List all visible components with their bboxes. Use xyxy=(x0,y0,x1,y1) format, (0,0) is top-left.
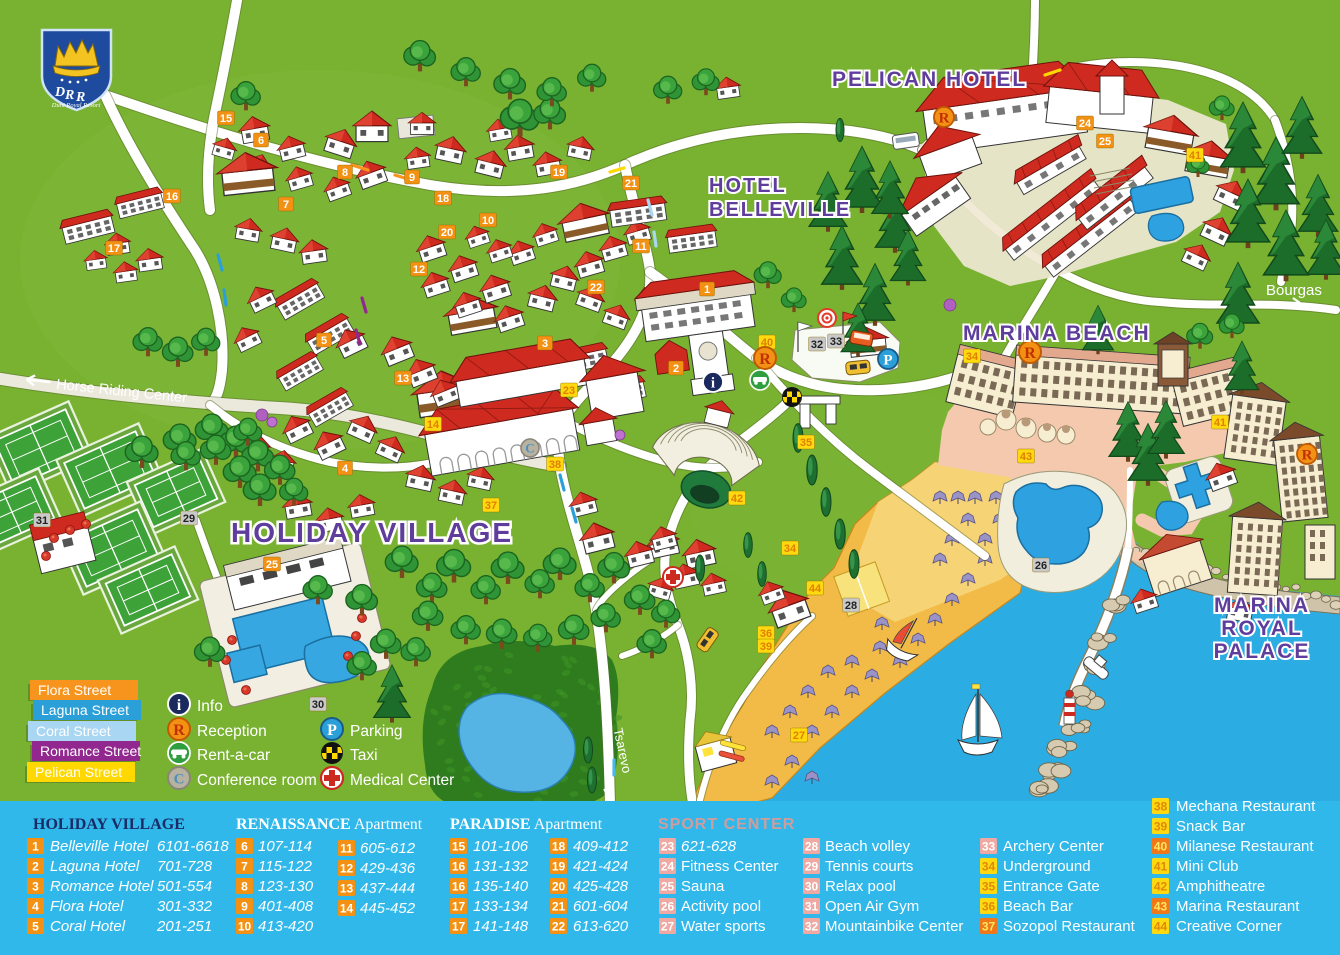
svg-text:201-251: 201-251 xyxy=(156,918,212,935)
svg-text:33: 33 xyxy=(830,336,842,348)
svg-text:Mountainbike Center: Mountainbike Center xyxy=(825,918,963,935)
svg-text:7: 7 xyxy=(241,860,248,874)
svg-text:PALACE: PALACE xyxy=(1214,640,1311,663)
svg-text:437-444: 437-444 xyxy=(360,880,415,897)
svg-text:29: 29 xyxy=(183,513,195,525)
svg-text:26: 26 xyxy=(661,900,675,914)
svg-text:115-122: 115-122 xyxy=(258,858,313,875)
svg-text:i: i xyxy=(177,697,182,714)
svg-text:BELLEVILLE: BELLEVILLE xyxy=(709,199,851,221)
svg-text:14: 14 xyxy=(340,902,354,916)
svg-text:16: 16 xyxy=(166,191,178,203)
svg-text:19: 19 xyxy=(552,860,566,874)
svg-text:445-452: 445-452 xyxy=(360,900,416,917)
svg-text:8: 8 xyxy=(342,167,348,179)
svg-text:Pelican Street: Pelican Street xyxy=(35,764,122,780)
svg-text:C: C xyxy=(174,771,185,787)
svg-text:MARINA BEACH: MARINA BEACH xyxy=(963,322,1151,345)
svg-text:Laguna Hotel: Laguna Hotel xyxy=(50,858,140,875)
svg-text:Coral Street: Coral Street xyxy=(36,723,111,739)
svg-text:36: 36 xyxy=(760,628,772,640)
svg-text:34: 34 xyxy=(784,543,797,555)
svg-text:18: 18 xyxy=(552,840,566,854)
svg-text:44: 44 xyxy=(1154,920,1168,934)
svg-text:409-412: 409-412 xyxy=(573,838,629,855)
svg-text:44: 44 xyxy=(809,583,822,595)
svg-text:31: 31 xyxy=(36,515,48,527)
svg-text:41: 41 xyxy=(1214,417,1226,429)
svg-text:R: R xyxy=(759,351,771,368)
svg-text:13: 13 xyxy=(397,373,409,385)
svg-text:41: 41 xyxy=(1154,860,1168,874)
svg-text:40: 40 xyxy=(1154,840,1168,854)
svg-text:38: 38 xyxy=(549,459,561,471)
svg-text:301-332: 301-332 xyxy=(157,898,213,915)
svg-text:38: 38 xyxy=(1154,800,1168,814)
svg-text:Bourgas: Bourgas xyxy=(1266,282,1322,299)
svg-text:133-134: 133-134 xyxy=(473,898,528,915)
svg-text:SPORT CENTER: SPORT CENTER xyxy=(658,816,795,833)
svg-text:Duni Royal Resort: Duni Royal Resort xyxy=(51,102,101,109)
svg-text:ROYAL: ROYAL xyxy=(1221,617,1303,640)
svg-text:605-612: 605-612 xyxy=(360,840,416,857)
svg-text:Tennis courts: Tennis courts xyxy=(825,858,913,875)
svg-text:613-620: 613-620 xyxy=(573,918,629,935)
svg-text:123-130: 123-130 xyxy=(258,878,314,895)
svg-text:3: 3 xyxy=(32,880,39,894)
svg-text:34: 34 xyxy=(966,351,979,363)
svg-text:14: 14 xyxy=(427,419,440,431)
svg-text:Romance Hotel: Romance Hotel xyxy=(50,878,154,895)
svg-text:Activity pool: Activity pool xyxy=(681,898,761,915)
svg-text:42: 42 xyxy=(1154,880,1168,894)
svg-text:Sauna: Sauna xyxy=(681,878,725,895)
svg-text:P: P xyxy=(327,722,337,739)
svg-text:Reception: Reception xyxy=(197,723,267,740)
svg-text:28: 28 xyxy=(805,840,819,854)
svg-text:i: i xyxy=(711,375,715,391)
svg-text:16: 16 xyxy=(452,860,466,874)
svg-text:107-114: 107-114 xyxy=(258,838,312,855)
svg-text:R: R xyxy=(1302,447,1313,463)
svg-text:20: 20 xyxy=(441,227,453,239)
svg-text:PELICAN HOTEL: PELICAN HOTEL xyxy=(832,68,1027,91)
svg-text:10: 10 xyxy=(238,920,252,934)
svg-text:429-436: 429-436 xyxy=(360,860,416,877)
svg-text:28: 28 xyxy=(845,600,857,612)
svg-text:C: C xyxy=(525,441,534,456)
svg-text:R: R xyxy=(173,722,185,739)
svg-text:Rent-a-car: Rent-a-car xyxy=(197,747,270,764)
svg-text:23: 23 xyxy=(563,385,575,397)
svg-text:Info: Info xyxy=(197,698,223,715)
svg-text:15: 15 xyxy=(452,840,466,854)
svg-text:31: 31 xyxy=(805,900,819,914)
svg-text:36: 36 xyxy=(982,900,996,914)
svg-text:17: 17 xyxy=(452,920,466,934)
svg-text:Marina Restaurant: Marina Restaurant xyxy=(1176,898,1300,915)
svg-text:Open Air Gym: Open Air Gym xyxy=(825,898,919,915)
svg-text:25: 25 xyxy=(661,880,675,894)
svg-text:34: 34 xyxy=(982,860,996,874)
svg-text:37: 37 xyxy=(982,920,996,934)
svg-text:9: 9 xyxy=(409,172,415,184)
svg-text:6101-6618: 6101-6618 xyxy=(157,838,229,855)
svg-text:101-106: 101-106 xyxy=(473,838,529,855)
svg-text:23: 23 xyxy=(661,840,675,854)
svg-text:16: 16 xyxy=(452,880,466,894)
svg-text:2: 2 xyxy=(673,363,679,375)
svg-text:Parking: Parking xyxy=(350,723,403,740)
svg-text:Underground: Underground xyxy=(1003,858,1091,875)
svg-text:25: 25 xyxy=(266,559,278,571)
svg-text:Beach Bar: Beach Bar xyxy=(1003,898,1073,915)
svg-text:17: 17 xyxy=(452,900,466,914)
svg-text:5: 5 xyxy=(32,920,39,934)
svg-text:27: 27 xyxy=(793,730,805,742)
svg-text:15: 15 xyxy=(220,113,232,125)
svg-text:Snack Bar: Snack Bar xyxy=(1176,818,1245,835)
svg-text:24: 24 xyxy=(1079,118,1092,130)
svg-text:Flora Street: Flora Street xyxy=(38,682,111,698)
svg-text:P: P xyxy=(883,352,892,368)
svg-text:21: 21 xyxy=(552,900,566,914)
svg-text:MARINA: MARINA xyxy=(1214,594,1310,617)
svg-text:701-728: 701-728 xyxy=(157,858,213,875)
svg-text:17: 17 xyxy=(108,243,120,255)
svg-text:22: 22 xyxy=(552,920,566,934)
svg-text:12: 12 xyxy=(413,264,425,276)
svg-text:RENAISSANCE Apartment: RENAISSANCE Apartment xyxy=(236,816,423,833)
svg-text:6: 6 xyxy=(258,135,264,147)
svg-text:24: 24 xyxy=(661,860,675,874)
svg-text:D: D xyxy=(54,85,65,100)
svg-text:Flora Hotel: Flora Hotel xyxy=(50,898,124,915)
svg-text:43: 43 xyxy=(1154,900,1168,914)
svg-text:33: 33 xyxy=(982,840,996,854)
svg-text:Sozopol Restaurant: Sozopol Restaurant xyxy=(1003,918,1136,935)
svg-text:1: 1 xyxy=(32,840,39,854)
svg-text:12: 12 xyxy=(340,862,354,876)
svg-text:26: 26 xyxy=(1035,560,1047,572)
svg-text:25: 25 xyxy=(1099,136,1111,148)
svg-text:Beach volley: Beach volley xyxy=(825,838,911,855)
svg-text:39: 39 xyxy=(760,641,772,653)
svg-text:HOLIDAY VILLAGE: HOLIDAY VILLAGE xyxy=(33,816,185,833)
svg-text:13: 13 xyxy=(340,882,354,896)
svg-text:37: 37 xyxy=(485,500,497,512)
svg-text:R: R xyxy=(939,110,950,126)
svg-text:4: 4 xyxy=(342,463,349,475)
svg-text:425-428: 425-428 xyxy=(573,878,629,895)
svg-text:Medical Center: Medical Center xyxy=(350,772,454,789)
svg-text:Belleville Hotel: Belleville Hotel xyxy=(50,838,149,855)
svg-text:131-132: 131-132 xyxy=(473,858,529,875)
svg-text:29: 29 xyxy=(805,860,819,874)
svg-text:Amphitheatre: Amphitheatre xyxy=(1176,878,1265,895)
svg-text:Mechana Restaurant: Mechana Restaurant xyxy=(1176,798,1316,815)
svg-text:5: 5 xyxy=(321,335,327,347)
svg-text:Romance Street: Romance Street xyxy=(40,743,141,759)
svg-text:35: 35 xyxy=(800,437,812,449)
svg-text:1: 1 xyxy=(704,284,710,296)
svg-text:20: 20 xyxy=(552,880,566,894)
svg-text:501-554: 501-554 xyxy=(157,878,212,895)
svg-text:Water sports: Water sports xyxy=(681,918,765,935)
svg-text:8: 8 xyxy=(241,880,248,894)
svg-text:27: 27 xyxy=(661,920,675,934)
svg-text:42: 42 xyxy=(731,493,743,505)
svg-text:Milanese Restaurant: Milanese Restaurant xyxy=(1176,838,1314,855)
svg-text:32: 32 xyxy=(805,920,819,934)
svg-text:11: 11 xyxy=(340,842,353,856)
svg-text:Taxi: Taxi xyxy=(350,747,378,764)
svg-text:141-148: 141-148 xyxy=(473,918,529,935)
svg-text:HOTEL: HOTEL xyxy=(709,175,787,197)
svg-text:22: 22 xyxy=(590,282,602,294)
svg-text:19: 19 xyxy=(553,167,565,179)
svg-text:21: 21 xyxy=(625,178,637,190)
svg-text:Conference room: Conference room xyxy=(197,772,317,789)
svg-text:135-140: 135-140 xyxy=(473,878,529,895)
svg-text:R: R xyxy=(64,88,74,103)
svg-text:2: 2 xyxy=(32,860,39,874)
svg-text:4: 4 xyxy=(32,900,39,914)
svg-text:Laguna Street: Laguna Street xyxy=(41,702,129,718)
svg-text:Creative Corner: Creative Corner xyxy=(1176,918,1282,935)
svg-text:10: 10 xyxy=(482,215,494,227)
svg-text:Archery Center: Archery Center xyxy=(1003,838,1104,855)
svg-text:Mini Club: Mini Club xyxy=(1176,858,1239,875)
svg-text:43: 43 xyxy=(1020,451,1032,463)
svg-text:421-424: 421-424 xyxy=(573,858,628,875)
svg-text:R: R xyxy=(1024,345,1036,362)
svg-text:413-420: 413-420 xyxy=(258,918,314,935)
svg-text:9: 9 xyxy=(241,900,248,914)
svg-text:7: 7 xyxy=(283,199,289,211)
svg-text:32: 32 xyxy=(811,339,823,351)
svg-text:6: 6 xyxy=(241,840,248,854)
svg-text:Fitness Center: Fitness Center xyxy=(681,858,779,875)
svg-text:PARADISE Apartment: PARADISE Apartment xyxy=(450,816,603,833)
svg-text:Relax pool: Relax pool xyxy=(825,878,896,895)
svg-text:39: 39 xyxy=(1154,820,1168,834)
svg-text:30: 30 xyxy=(805,880,819,894)
svg-text:3: 3 xyxy=(542,338,548,350)
svg-text:18: 18 xyxy=(437,193,449,205)
svg-text:621-628: 621-628 xyxy=(681,838,737,855)
svg-text:Entrance Gate: Entrance Gate xyxy=(1003,878,1100,895)
svg-text:11: 11 xyxy=(635,241,647,253)
svg-text:Coral Hotel: Coral Hotel xyxy=(50,918,126,935)
svg-text:HOLIDAY VILLAGE: HOLIDAY VILLAGE xyxy=(231,517,513,548)
svg-text:30: 30 xyxy=(312,699,324,711)
svg-text:401-408: 401-408 xyxy=(258,898,314,915)
svg-text:41: 41 xyxy=(1189,150,1201,162)
svg-text:601-604: 601-604 xyxy=(573,898,628,915)
svg-text:35: 35 xyxy=(982,880,996,894)
